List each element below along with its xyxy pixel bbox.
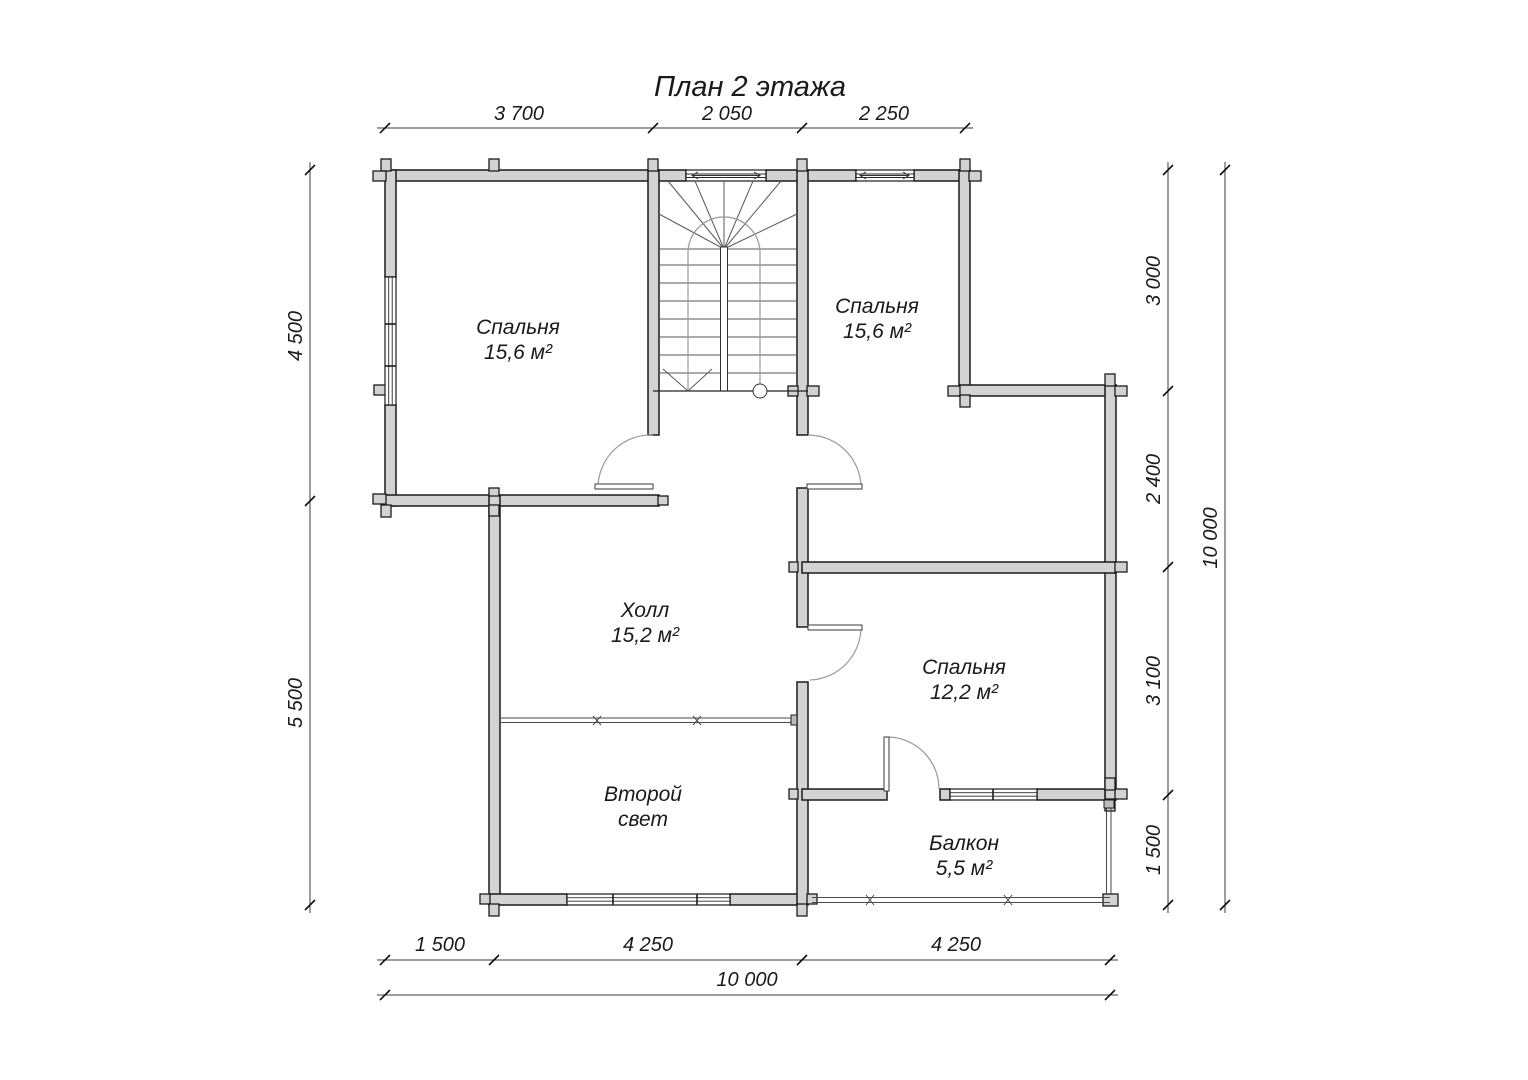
wall-segment <box>648 170 659 435</box>
stair-winder-fan <box>659 181 797 249</box>
room-label-balcony-area: 5,5 м² <box>936 857 993 880</box>
wall-segment <box>802 789 887 800</box>
door-balcony <box>884 737 939 791</box>
railing-second-light <box>500 715 797 725</box>
room-label-second-light-line1: Второй <box>604 783 682 806</box>
dimension-lines: 3 700 2 050 2 250 4 500 5 500 3 000 2 40… <box>285 103 1230 1000</box>
dim-right-4: 1 500 <box>1143 825 1165 875</box>
room-label-hall-area: 15,2 м² <box>611 624 680 647</box>
room-label-second-light-line2: свет <box>618 808 668 831</box>
wall-segment <box>489 495 500 905</box>
window-stair-bay <box>686 170 766 181</box>
room-label-bedroom-small-area: 12,2 м² <box>930 681 999 704</box>
staircase <box>653 181 808 398</box>
dim-top-1: 3 700 <box>494 103 544 125</box>
railing-balcony-right <box>1104 800 1114 894</box>
room-label-bedroom-left-area: 15,6 м² <box>484 341 553 364</box>
wall-segment <box>802 562 1116 573</box>
dim-bottom-2: 4 250 <box>623 934 673 956</box>
room-label-bedroom-right-area: 15,6 м² <box>843 320 912 343</box>
room-labels: План 2 этажа Спальня 15,6 м² Спальня 15,… <box>476 71 1006 880</box>
room-label-balcony-name: Балкон <box>929 832 1000 855</box>
wall-segment <box>385 495 659 506</box>
plan-title: План 2 этажа <box>654 71 846 103</box>
dim-bottom-1: 1 500 <box>415 934 465 956</box>
dim-bottom-3: 4 250 <box>931 934 981 956</box>
dim-right-2: 2 400 <box>1143 454 1165 505</box>
windows <box>385 170 1037 905</box>
wall-segment <box>385 170 686 181</box>
window-bedroom-left <box>385 277 396 405</box>
dim-right-total: 10 000 <box>1200 507 1222 568</box>
wall-segment <box>385 170 396 277</box>
wall-segment <box>959 170 970 396</box>
wall-segment <box>959 385 1116 396</box>
dim-bottom-total: 10 000 <box>716 969 777 991</box>
wall-segment <box>797 488 808 627</box>
door-bedroom-right <box>807 435 862 489</box>
window-bedroom-right <box>856 170 914 181</box>
floor-plan-drawing: 3 700 2 050 2 250 4 500 5 500 3 000 2 40… <box>0 0 1528 1080</box>
railing-balcony-bottom <box>812 895 1110 905</box>
floor-plan-page: 3 700 2 050 2 250 4 500 5 500 3 000 2 40… <box>0 0 1528 1080</box>
dim-left-2: 5 500 <box>285 678 307 728</box>
wall-segment <box>385 405 396 506</box>
dim-right-3: 3 100 <box>1143 656 1165 706</box>
window-second-light <box>567 894 730 905</box>
stair-newel-post <box>753 384 767 398</box>
stair-divider <box>721 247 728 391</box>
room-label-hall-name: Холл <box>620 599 670 622</box>
dim-left-1: 4 500 <box>285 311 307 361</box>
window-balcony-wall <box>950 789 1037 800</box>
wall-segment <box>1037 789 1105 800</box>
wall-segment <box>797 170 808 435</box>
door-bedroom-small <box>808 625 862 680</box>
dim-top-3: 2 250 <box>858 103 909 125</box>
wall-segment <box>489 894 567 905</box>
wall-segment <box>1105 385 1116 800</box>
wall-segment <box>766 170 856 181</box>
room-label-bedroom-right-name: Спальня <box>835 295 919 318</box>
wall-segment <box>730 894 807 905</box>
door-bedroom-left <box>595 435 653 489</box>
room-label-bedroom-small-name: Спальня <box>922 656 1006 679</box>
wall-segment <box>940 789 950 800</box>
room-label-bedroom-left-name: Спальня <box>476 316 560 339</box>
dim-top-2: 2 050 <box>701 103 752 125</box>
log-joint-stubs <box>373 159 1127 916</box>
dim-right-1: 3 000 <box>1143 256 1165 306</box>
